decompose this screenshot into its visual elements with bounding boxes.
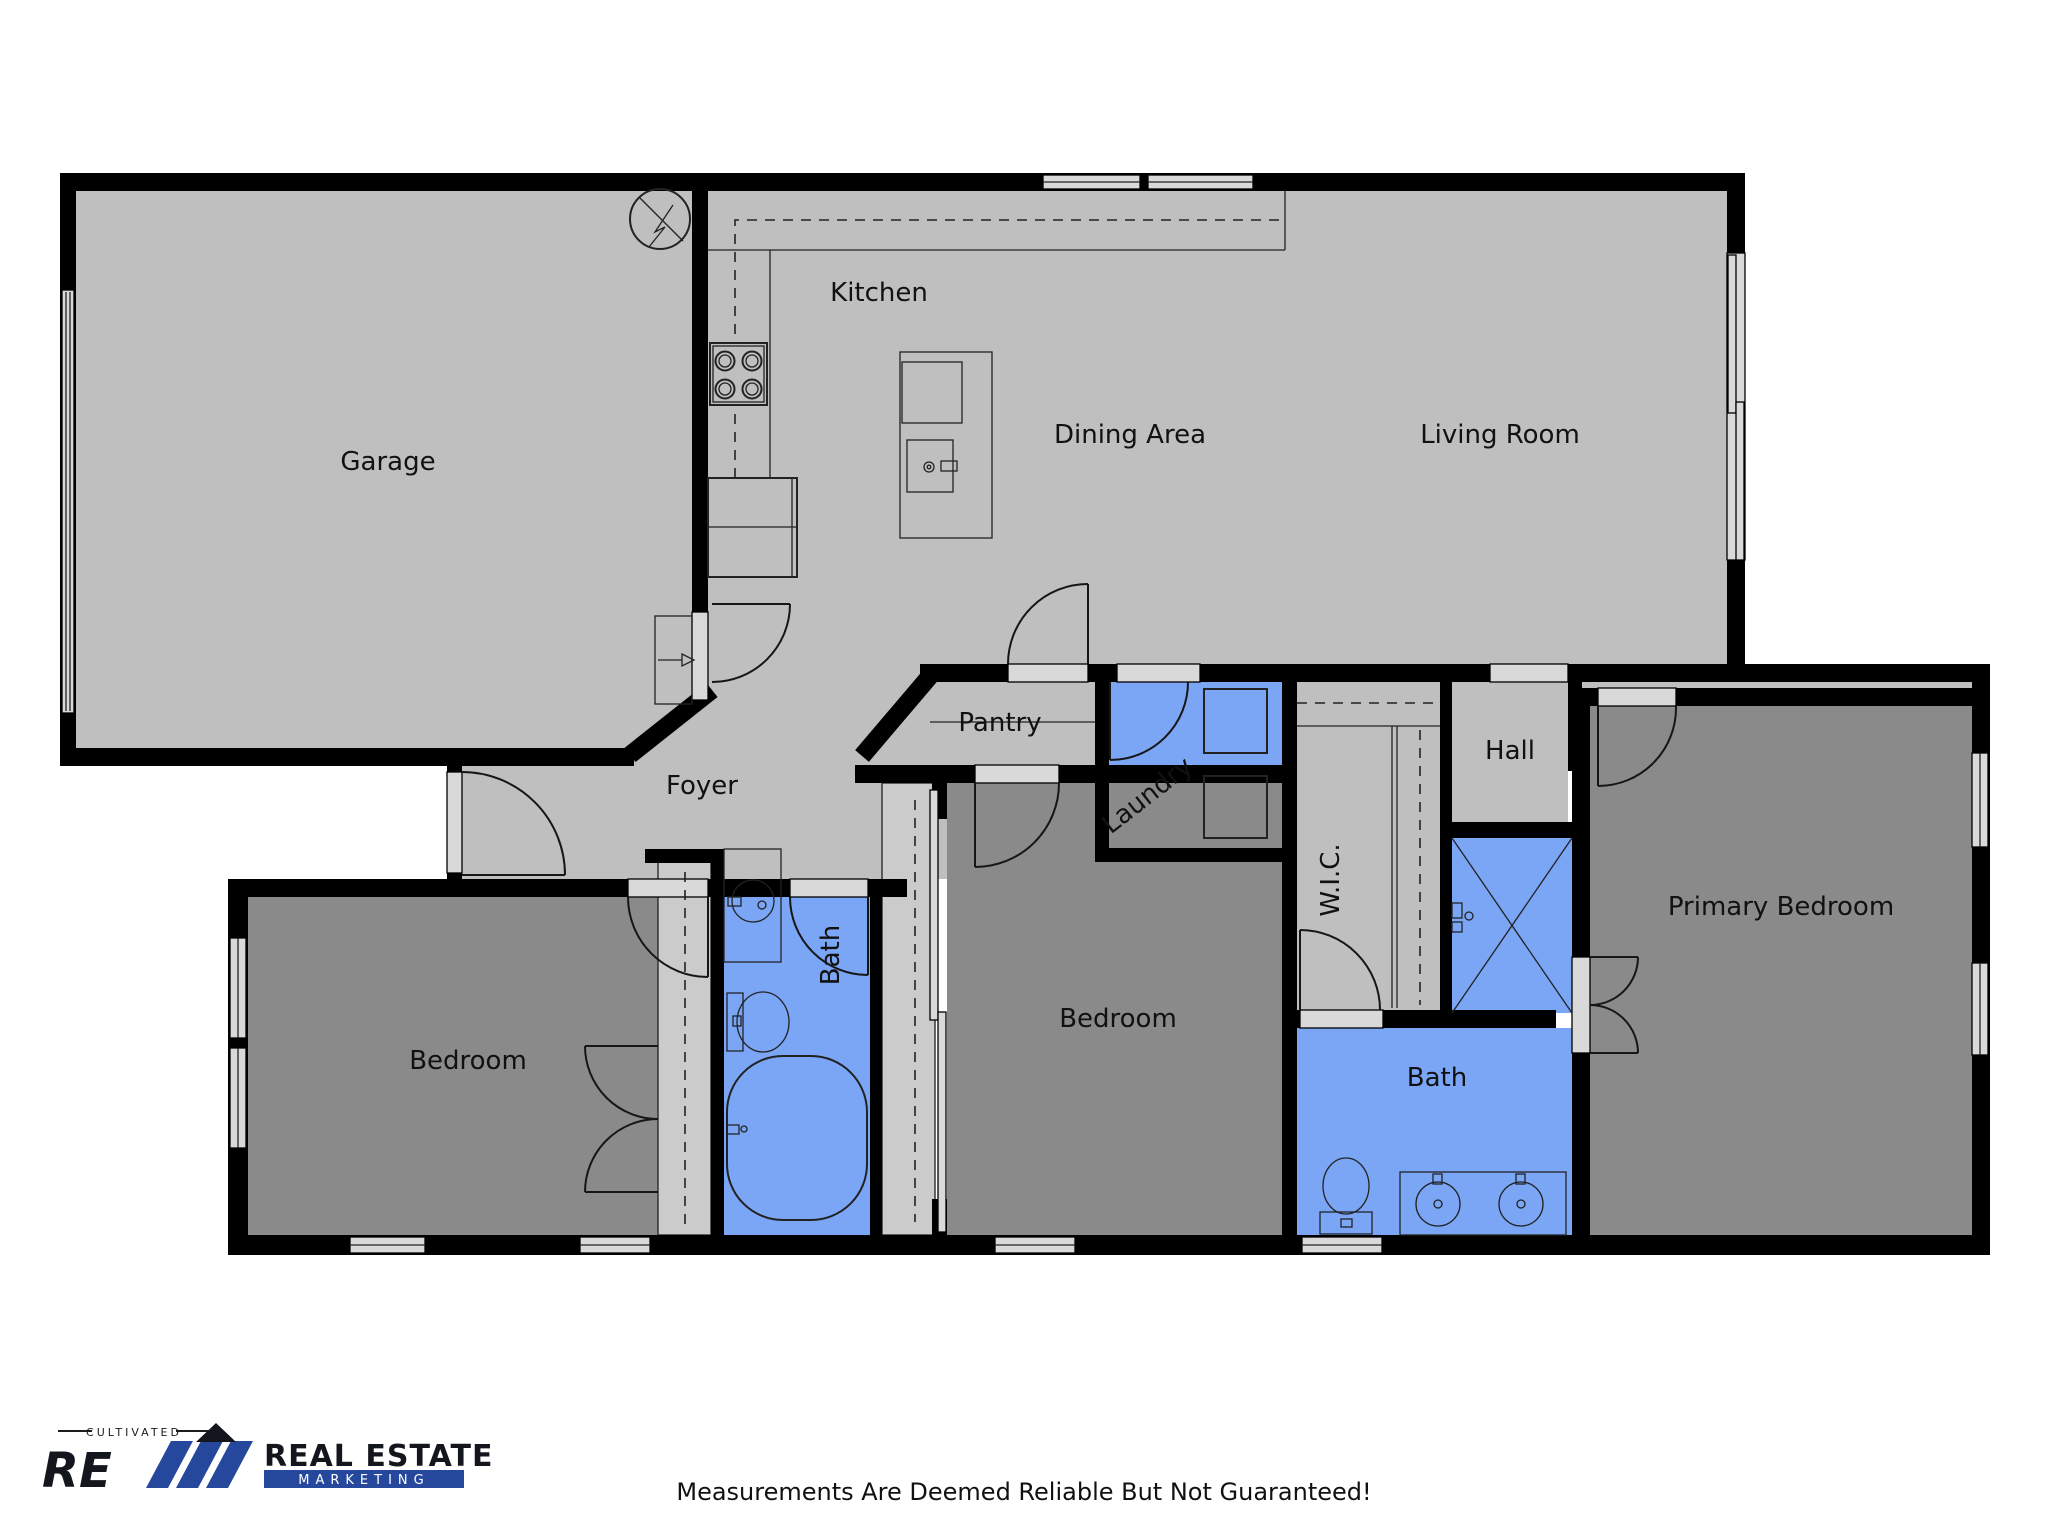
window-bedroom1-west-1 bbox=[230, 938, 246, 1038]
bedroom1-label: Bedroom bbox=[409, 1046, 527, 1076]
foyer-label: Foyer bbox=[666, 771, 738, 801]
wall-hall-bottom bbox=[1440, 822, 1582, 838]
wall-laundry-west bbox=[1095, 664, 1109, 862]
pantry-door-sill bbox=[1008, 664, 1088, 682]
wic-door-sill bbox=[1300, 1010, 1383, 1028]
laundry-door-sill bbox=[1117, 664, 1200, 682]
window-primary-2 bbox=[1972, 963, 1988, 1055]
garage-door bbox=[62, 290, 74, 713]
wall-laundry-bottom bbox=[1095, 848, 1282, 862]
bath1-door-sill bbox=[790, 879, 868, 897]
window-bedroom1-west-2 bbox=[230, 1048, 246, 1148]
wall-step-right bbox=[1745, 664, 1990, 682]
garage-label: Garage bbox=[340, 447, 435, 477]
wic-label: W.I.C. bbox=[1316, 843, 1346, 916]
hall-label: Hall bbox=[1485, 736, 1535, 766]
window-bottom-2 bbox=[580, 1237, 650, 1253]
wall-bedroom2-top bbox=[855, 765, 1297, 783]
floorplan-page: Garage Kitchen Dining Area Living Room P… bbox=[0, 0, 2048, 1536]
closet2-bypass-door-1 bbox=[930, 790, 938, 1020]
wall-bedroom2-east bbox=[1282, 1028, 1297, 1235]
primary-closet-sill bbox=[1572, 957, 1590, 1053]
floorplan-svg: Garage Kitchen Dining Area Living Room P… bbox=[0, 0, 2048, 1536]
primary-label: Primary Bedroom bbox=[1668, 892, 1894, 922]
logo-monogram: RE bbox=[42, 1443, 112, 1499]
wall-top bbox=[60, 173, 1745, 191]
hall-opening-sill bbox=[1490, 664, 1568, 682]
kitchen-label: Kitchen bbox=[830, 278, 928, 308]
front-door-sill bbox=[447, 772, 462, 873]
disclaimer-text: Measurements Are Deemed Reliable But Not… bbox=[676, 1478, 1371, 1506]
wall-living-bottom bbox=[1105, 664, 1745, 682]
garage-entry-sill bbox=[692, 612, 708, 700]
wall-garage-bottom bbox=[60, 748, 634, 766]
living-label: Living Room bbox=[1420, 420, 1580, 450]
bath1-floor bbox=[724, 897, 870, 1235]
wall-hall-west bbox=[1440, 680, 1452, 1028]
primary-door-sill bbox=[1598, 688, 1676, 706]
bath2-label: Bath bbox=[1407, 1063, 1467, 1093]
window-top-2 bbox=[1148, 175, 1253, 189]
bedroom2-door-sill bbox=[975, 765, 1059, 783]
wall-bath1-east bbox=[870, 897, 882, 1235]
bedroom1-door-sill bbox=[628, 879, 708, 897]
brand-logo: CULTIVATED RE REAL ESTATE MARKETING bbox=[42, 1423, 493, 1499]
bedroom2-closet-strip bbox=[882, 783, 935, 1235]
window-bottom-1 bbox=[350, 1237, 425, 1253]
closet2-bypass-door-2 bbox=[938, 1012, 946, 1232]
window-bottom-4 bbox=[1302, 1237, 1382, 1253]
pantry-label: Pantry bbox=[958, 708, 1041, 738]
logo-roof-icon bbox=[196, 1423, 236, 1442]
logo-line2: MARKETING bbox=[298, 1473, 429, 1488]
dining-label: Dining Area bbox=[1054, 420, 1206, 450]
window-bottom-3 bbox=[995, 1237, 1075, 1253]
logo-line1: REAL ESTATE bbox=[264, 1439, 493, 1474]
wall-garage-kitchen bbox=[692, 191, 708, 612]
bedroom2-label: Bedroom bbox=[1059, 1004, 1177, 1034]
sliding-door-living bbox=[1727, 253, 1745, 560]
logo-tagline: CULTIVATED bbox=[86, 1426, 182, 1439]
window-primary-1 bbox=[1972, 753, 1988, 847]
window-top-1 bbox=[1043, 175, 1140, 189]
stove bbox=[710, 343, 767, 405]
bath1-label: Bath bbox=[816, 925, 846, 985]
primary-bedroom-floor bbox=[1590, 706, 1972, 1235]
wall-laundry-wic bbox=[1282, 664, 1297, 1013]
wall-bath1-west bbox=[711, 849, 724, 1235]
wall-bottom bbox=[228, 1235, 1990, 1255]
